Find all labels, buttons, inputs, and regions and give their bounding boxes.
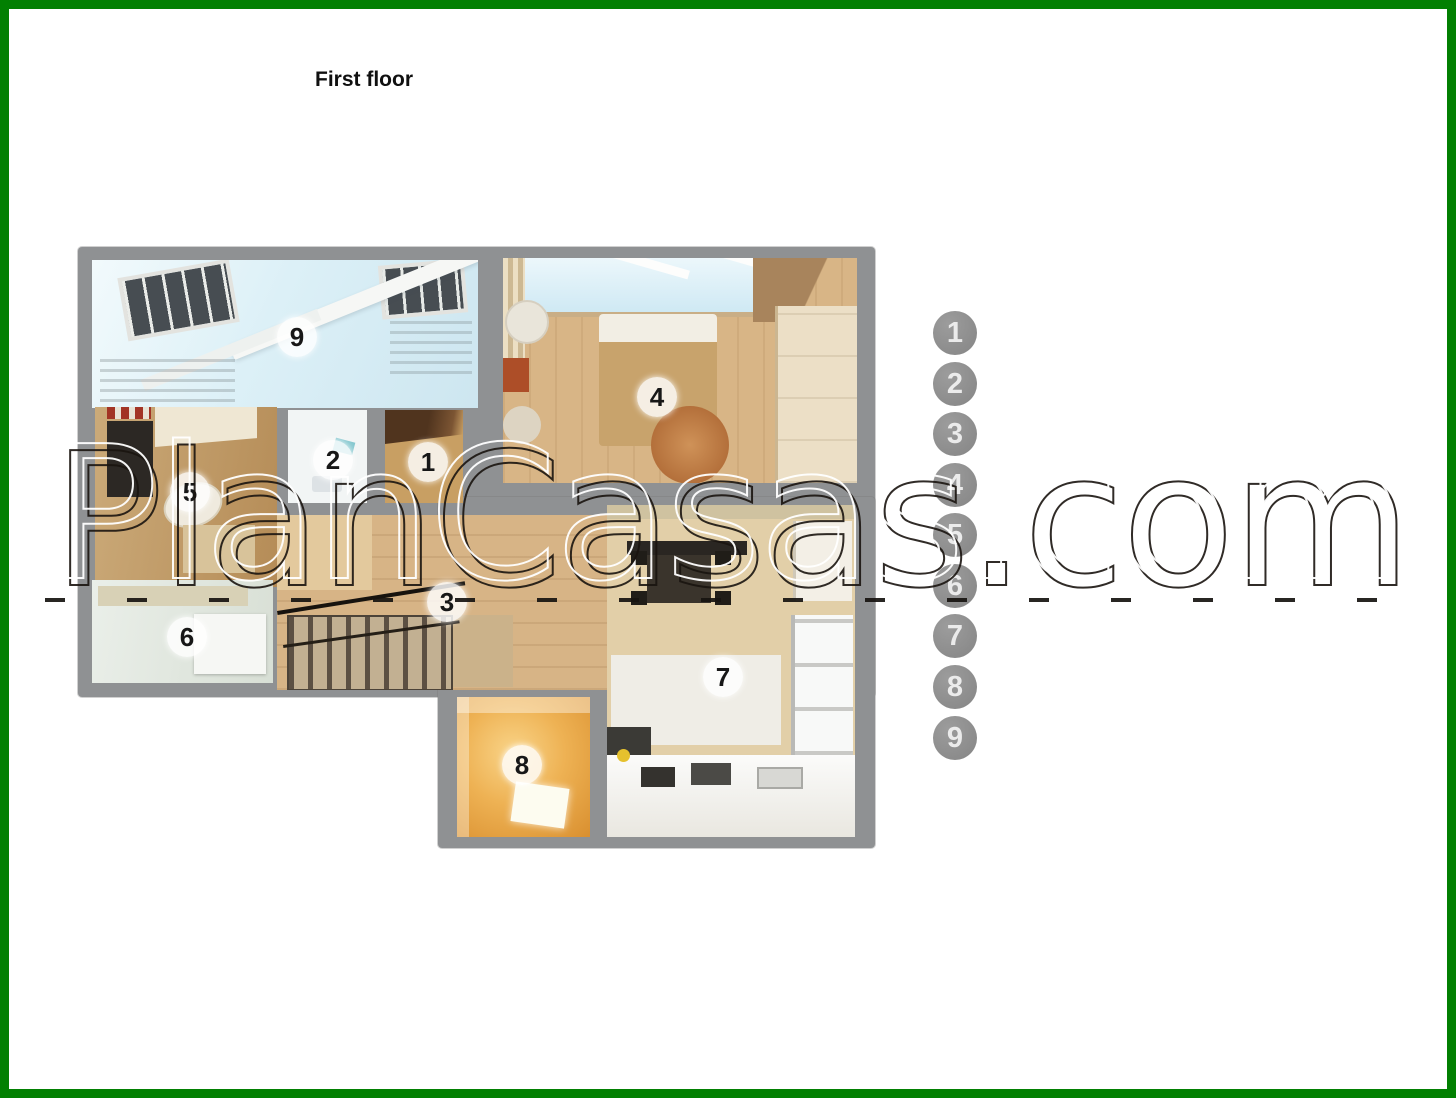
room-4-bedroom — [503, 258, 857, 483]
room-badge-9: 9 — [277, 317, 317, 357]
utility-shelf-items — [107, 407, 151, 419]
kitchen-stool — [617, 749, 630, 762]
page: First floor — [0, 0, 1456, 1098]
room-badge-7: 7 — [703, 657, 743, 697]
kitchen-sink — [757, 767, 803, 789]
legend-circle-6: 6 — [933, 564, 977, 608]
legend-circle-3: 3 — [933, 412, 977, 456]
kitchen-tall-cabinets — [793, 521, 852, 601]
bedroom-red-cabinet — [503, 358, 529, 392]
bedroom-skylight-beam — [572, 258, 690, 279]
kitchen-chair — [715, 591, 731, 605]
bedroom-pillows — [599, 314, 717, 342]
terrace-roof-slats-right — [390, 318, 472, 374]
utility-cabinet — [183, 525, 255, 573]
kitchen-appliance — [691, 763, 731, 785]
room-badge-4: 4 — [637, 377, 677, 417]
legend-circle-7: 7 — [933, 614, 977, 658]
utility-counter — [155, 407, 257, 447]
stairs-landing — [453, 615, 513, 687]
terrace-skylight-left — [117, 260, 239, 341]
kitchen-cooktop — [641, 767, 675, 787]
legend-circle-8: 8 — [933, 665, 977, 709]
legend-circle-2: 2 — [933, 362, 977, 406]
boiler-room-skylight — [510, 781, 569, 828]
legend-circle-4: 4 — [933, 463, 977, 507]
small-bedroom-cabinet — [98, 586, 248, 606]
legend-circle-5: 5 — [933, 513, 977, 557]
boiler-room-wall-light — [457, 697, 469, 837]
room-badge-1: 1 — [408, 442, 448, 482]
page-title: First floor — [315, 68, 413, 92]
entry-dark-wardrobe — [385, 410, 463, 444]
legend-circle-1: 1 — [933, 311, 977, 355]
terrace-roof-slats-left — [100, 352, 235, 402]
bedroom-round-table — [505, 300, 549, 344]
room-badge-3: 3 — [427, 582, 467, 622]
bedroom-rug — [651, 406, 729, 483]
kitchen-chair — [715, 551, 731, 565]
kitchen-chair — [631, 551, 647, 565]
room-badge-8: 8 — [502, 745, 542, 785]
bedroom-wardrobe — [775, 306, 857, 483]
bedroom-skylight — [521, 258, 791, 317]
utility-dark-cabinet — [107, 421, 153, 497]
hall-door-area — [277, 515, 372, 590]
kitchen-top-wall — [607, 505, 855, 519]
legend-circle-9: 9 — [933, 716, 977, 760]
room-badge-6: 6 — [167, 617, 207, 657]
kitchen-chair — [631, 591, 647, 605]
bedroom-round-table-2 — [503, 406, 541, 444]
room-badge-2: 2 — [313, 440, 353, 480]
boiler-room-light — [457, 697, 590, 713]
room-badge-5: 5 — [170, 472, 210, 512]
kitchen-dining-table — [647, 555, 711, 603]
